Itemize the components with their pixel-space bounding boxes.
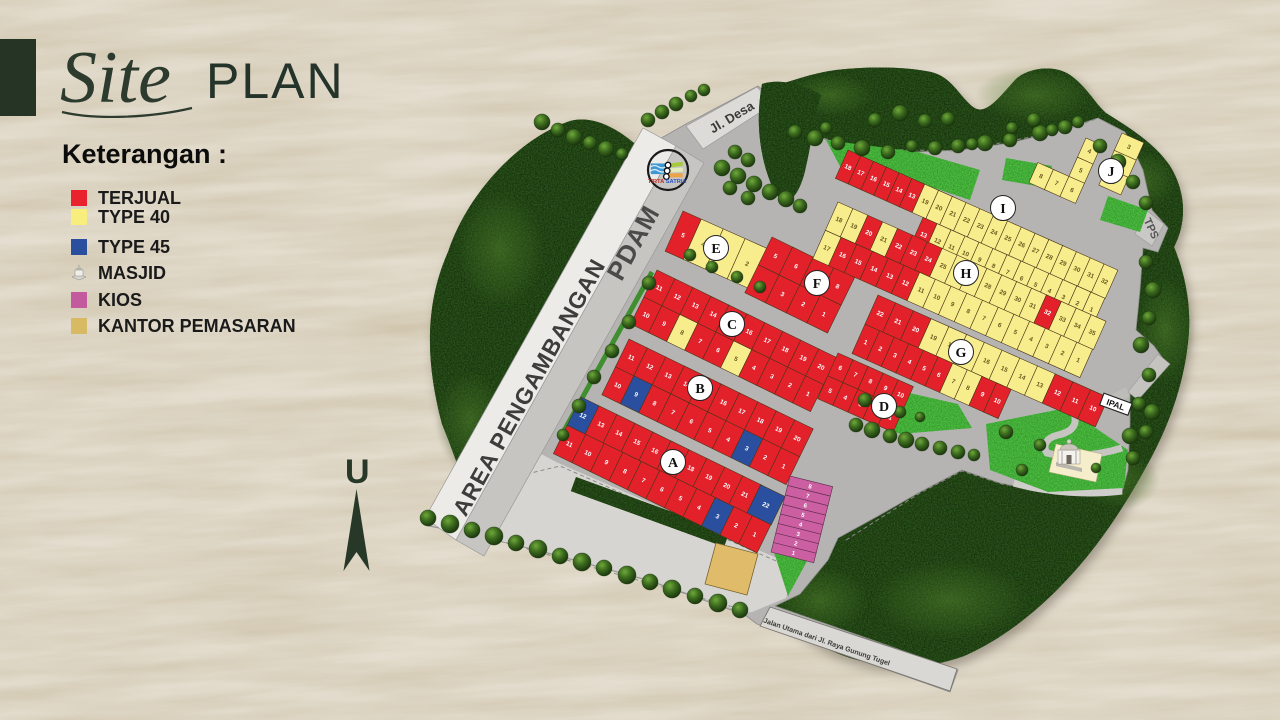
svg-text:G: G	[956, 346, 967, 361]
svg-text:TIRTA SATRIA: TIRTA SATRIA	[648, 179, 687, 185]
svg-text:I: I	[1000, 202, 1005, 217]
svg-text:A: A	[668, 456, 679, 471]
svg-text:H: H	[961, 267, 972, 282]
svg-text:U: U	[345, 453, 370, 491]
svg-text:C: C	[727, 318, 737, 333]
svg-text:F: F	[813, 277, 822, 292]
svg-text:TERJUAL: TERJUAL	[98, 188, 181, 208]
svg-text:KIOS: KIOS	[98, 290, 142, 310]
svg-text:PLAN: PLAN	[206, 53, 345, 109]
svg-text:KANTOR PEMASARAN: KANTOR PEMASARAN	[98, 316, 296, 336]
svg-text:J: J	[1108, 165, 1115, 180]
svg-text:MASJID: MASJID	[98, 263, 166, 283]
svg-text:B: B	[695, 382, 704, 397]
svg-text:D: D	[879, 400, 889, 415]
svg-text:Keterangan :: Keterangan :	[62, 139, 227, 169]
svg-text:E: E	[711, 242, 720, 257]
svg-text:Site: Site	[60, 37, 171, 119]
svg-text:TYPE 40: TYPE 40	[98, 207, 170, 227]
svg-text:TYPE 45: TYPE 45	[98, 237, 170, 257]
